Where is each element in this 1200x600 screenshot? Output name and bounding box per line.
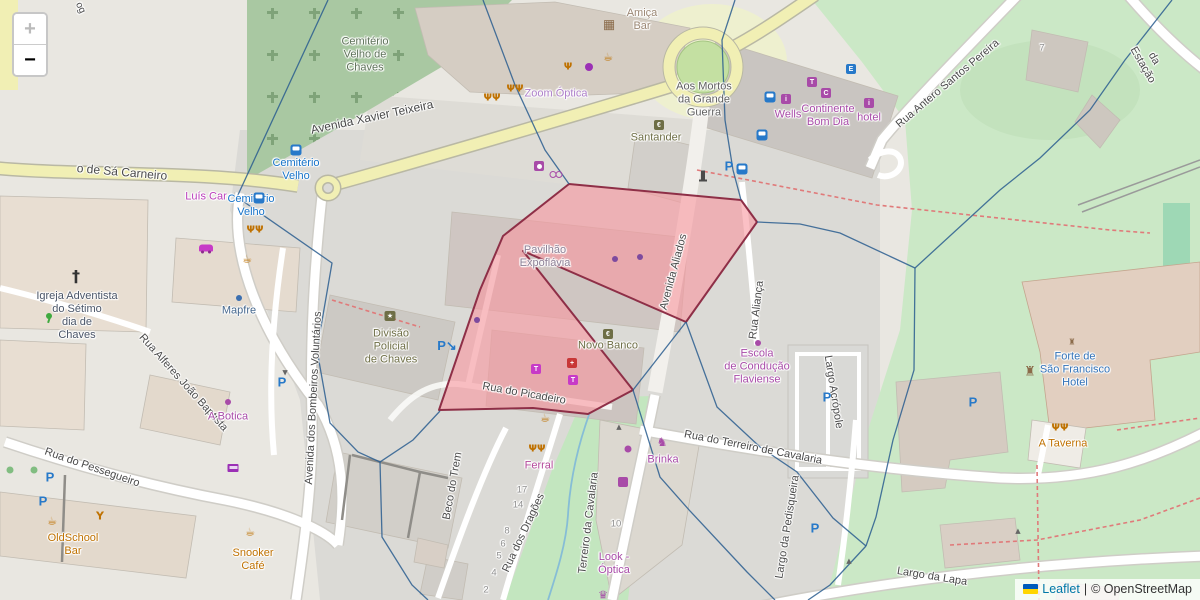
attribution-bar: Leaflet | © OpenStreetMap bbox=[1015, 579, 1200, 600]
zoom-control: + − bbox=[12, 12, 48, 77]
osm-attribution-link[interactable]: © OpenStreetMap bbox=[1091, 582, 1192, 596]
leaflet-link[interactable]: Leaflet bbox=[1042, 582, 1080, 596]
map-tiles bbox=[0, 0, 1200, 600]
attribution-separator: | bbox=[1084, 582, 1087, 596]
ukraine-flag-icon bbox=[1023, 584, 1038, 594]
zoom-out-button[interactable]: − bbox=[14, 45, 46, 75]
zoom-in-button[interactable]: + bbox=[14, 14, 46, 44]
leaflet-map-canvas[interactable]: o de Sá CarneiroAvenida Xavier TeixeiraR… bbox=[0, 0, 1200, 600]
